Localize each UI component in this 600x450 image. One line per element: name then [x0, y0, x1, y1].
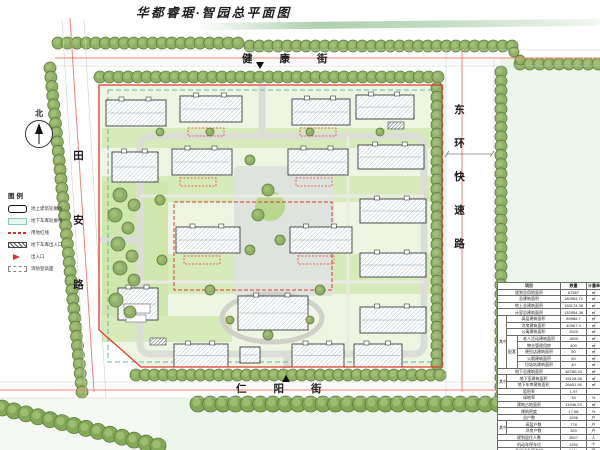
- legend-item-label: 地下车库出入口: [31, 242, 63, 248]
- table-cell: 机动车停车位: [498, 441, 561, 448]
- table-cell: 项目: [498, 283, 561, 290]
- table-cell: 数量: [561, 283, 587, 290]
- red-line-symbol-icon: [8, 232, 27, 234]
- table-row: 地下车库建筑面积26651.95㎡: [498, 381, 600, 388]
- table-cell: 户: [587, 414, 600, 421]
- table-cell: ㎡: [587, 296, 600, 303]
- table-cell: 总建筑面积: [498, 296, 561, 303]
- table-cell: 地下车库建筑面积: [507, 381, 561, 388]
- table-cell: 户: [587, 421, 600, 428]
- table-cell: 67567: [561, 289, 587, 296]
- table-cell: 洋房建筑面积: [507, 322, 561, 329]
- table-row: 其中地下室建筑面积19128.38㎡: [498, 375, 600, 382]
- legend-item-label: 用地红线: [31, 230, 49, 236]
- table-cell: 17.68: [561, 408, 587, 415]
- north-arrow: 北: [24, 108, 54, 148]
- metrics-table-panel: 项目数量计量单位规划总用地面积67567㎡总建筑面积180954.71㎡地上总建…: [497, 282, 600, 450]
- table-cell: 容积率: [498, 388, 561, 395]
- table-cell: 35: [561, 395, 587, 402]
- legend-item-fire-lane: 消防登高面: [8, 263, 94, 275]
- table-cell: 便民店建筑面积: [518, 348, 561, 355]
- table-cell: ㎡: [587, 342, 600, 349]
- table-cell: 2520: [561, 329, 587, 336]
- table-cell: 洋房户数: [507, 428, 561, 435]
- table-cell: ㎡: [587, 355, 600, 362]
- table-cell: 89986.7: [561, 315, 587, 322]
- table-cell: ㎡: [587, 375, 600, 382]
- table-cell: 计容总建筑面积: [498, 309, 561, 316]
- legend-items: 地上建筑轮廓线地下车库轮廓线用地红线地下车库出入口出入口消防登高面: [8, 203, 94, 275]
- table-row: 其中高层户数776户: [498, 421, 600, 428]
- table-row: 洋房户数320户: [498, 428, 600, 435]
- table-row: 公寓建筑面积2520㎡: [498, 329, 600, 336]
- table-cell: ㎡: [587, 401, 600, 408]
- table-cell: 物业管理用房: [518, 342, 561, 349]
- table-cell: 公寓建筑面积: [507, 329, 561, 336]
- legend-item-label: 出入口: [31, 254, 45, 260]
- table-cell: 50: [561, 348, 587, 355]
- table-cell: 19128.38: [561, 375, 587, 382]
- table-row: 洋房建筑面积40967.3㎡: [498, 322, 600, 329]
- table-row: 容积率1.97: [498, 388, 600, 395]
- street-label-right: 东环快速路: [452, 104, 467, 272]
- table-cell: 1352: [561, 441, 587, 448]
- table-row: 总建筑面积180954.71㎡: [498, 296, 600, 303]
- north-stem: [39, 133, 40, 144]
- table-row: 绿地率35%: [498, 395, 600, 402]
- table-row: 地上总建筑面积135174.38㎡: [498, 302, 600, 309]
- table-cell: ㎡: [587, 368, 600, 375]
- legend-item-red-line: 用地红线: [8, 227, 94, 239]
- table-cell: 人: [587, 434, 600, 441]
- table-cell: 地上总建筑面积: [498, 302, 561, 309]
- table-cell: 3507: [561, 434, 587, 441]
- table-cell: 总户数: [498, 414, 561, 421]
- table-cell: %: [587, 395, 600, 402]
- table-row: 总户数1096户: [498, 414, 600, 421]
- table-cell: ㎡: [587, 309, 600, 316]
- legend-item-entrance: 出入口: [8, 251, 94, 263]
- table-cell: ㎡: [587, 302, 600, 309]
- table-cell: 1.97: [561, 388, 587, 395]
- table-cell: 1800: [561, 335, 587, 342]
- north-label: 北: [24, 108, 54, 119]
- table-cell: 个: [587, 441, 600, 448]
- legend: 图例 地上建筑轮廓线地下车库轮廓线用地红线地下车库出入口出入口消防登高面: [8, 190, 94, 275]
- table-cell: 45780.33: [561, 368, 587, 375]
- table-cell: 公厕建筑面积: [518, 355, 561, 362]
- table-cell: 其中: [498, 375, 507, 388]
- drawing-title: 华都睿琚·智园总平面图: [136, 2, 292, 21]
- table-cell: 1096: [561, 414, 587, 421]
- table-cell: 其中: [498, 315, 507, 368]
- table-cell: 建筑密度: [498, 408, 561, 415]
- metrics-table: 项目数量计量单位规划总用地面积67567㎡总建筑面积180954.71㎡地上总建…: [497, 282, 600, 450]
- table-cell: ㎡: [587, 348, 600, 355]
- building-outline-symbol-icon: [8, 205, 27, 213]
- table-row: 配套老人活动建筑面积1800㎡: [498, 335, 600, 342]
- table-cell: 高层户数: [507, 421, 561, 428]
- legend-item-garage-outline: 地下车库轮廓线: [8, 215, 94, 227]
- table-row: 规划总用地面积67567㎡: [498, 289, 600, 296]
- legend-item-label: 消防登高面: [31, 266, 54, 272]
- table-cell: 26651.95: [561, 381, 587, 388]
- table-row: 项目数量计量单位: [498, 283, 600, 290]
- table-cell: 高层建筑面积: [507, 315, 561, 322]
- table-cell: 垃圾站建筑面积: [518, 362, 561, 369]
- table-cell: 老人活动建筑面积: [518, 335, 561, 342]
- site-plan-page: 华都睿琚·智园总平面图 健康街 仁阳街 田安路 东环快速路 北 图例 地上建筑轮…: [0, 0, 600, 450]
- table-cell: [587, 388, 600, 395]
- table-cell: 其中: [498, 421, 507, 434]
- table-row: 建筑密度17.68%: [498, 408, 600, 415]
- table-cell: 绿地率: [498, 395, 561, 402]
- table-cell: 135174.38: [561, 302, 587, 309]
- table-cell: 400: [561, 342, 587, 349]
- table-cell: ㎡: [587, 362, 600, 369]
- table-cell: 40: [561, 362, 587, 369]
- street-label-bottom: 仁阳街: [236, 381, 349, 396]
- table-cell: ㎡: [587, 329, 600, 336]
- table-cell: 11946.23: [561, 401, 587, 408]
- table-row: 规划居住人数3507人: [498, 434, 600, 441]
- legend-item-label: 地上建筑轮廓线: [31, 206, 63, 212]
- legend-item-building-outline: 地上建筑轮廓线: [8, 203, 94, 215]
- table-cell: 地下室建筑面积: [507, 375, 561, 382]
- table-cell: ㎡: [587, 322, 600, 329]
- street-label-top: 健康街: [242, 51, 355, 66]
- table-cell: 户: [587, 428, 600, 435]
- table-cell: 180954.71: [561, 296, 587, 303]
- table-cell: ㎡: [587, 315, 600, 322]
- garage-entrance-symbol-icon: [8, 242, 27, 248]
- table-row: 建筑占地面积11946.23㎡: [498, 401, 600, 408]
- legend-title: 图例: [8, 190, 94, 200]
- north-circle-icon: [25, 120, 53, 148]
- legend-item-garage-entrance: 地下车库出入口: [8, 239, 94, 251]
- garage-outline-symbol-icon: [8, 218, 27, 225]
- table-row: 机动车停车位1352个: [498, 441, 600, 448]
- table-cell: 40967.3: [561, 322, 587, 329]
- table-cell: 776: [561, 421, 587, 428]
- table-cell: %: [587, 408, 600, 415]
- table-cell: 50: [561, 355, 587, 362]
- entrance-symbol-icon: [13, 254, 20, 260]
- table-cell: 132954.38: [561, 309, 587, 316]
- table-cell: 配套: [507, 335, 518, 368]
- legend-item-label: 地下车库轮廓线: [31, 218, 63, 224]
- table-cell: 规划总用地面积: [498, 289, 561, 296]
- table-row: 其中高层建筑面积89986.7㎡: [498, 315, 600, 322]
- table-cell: 建筑占地面积: [498, 401, 561, 408]
- table-cell: 计量单位: [587, 283, 600, 290]
- table-row: 计容总建筑面积132954.38㎡: [498, 309, 600, 316]
- table-cell: 地下总建筑面积: [498, 368, 561, 375]
- table-cell: ㎡: [587, 381, 600, 388]
- table-cell: ㎡: [587, 335, 600, 342]
- table-cell: 320: [561, 428, 587, 435]
- table-cell: 规划居住人数: [498, 434, 561, 441]
- table-row: 地下总建筑面积45780.33㎡: [498, 368, 600, 375]
- table-cell: ㎡: [587, 289, 600, 296]
- fire-lane-symbol-icon: [8, 266, 27, 272]
